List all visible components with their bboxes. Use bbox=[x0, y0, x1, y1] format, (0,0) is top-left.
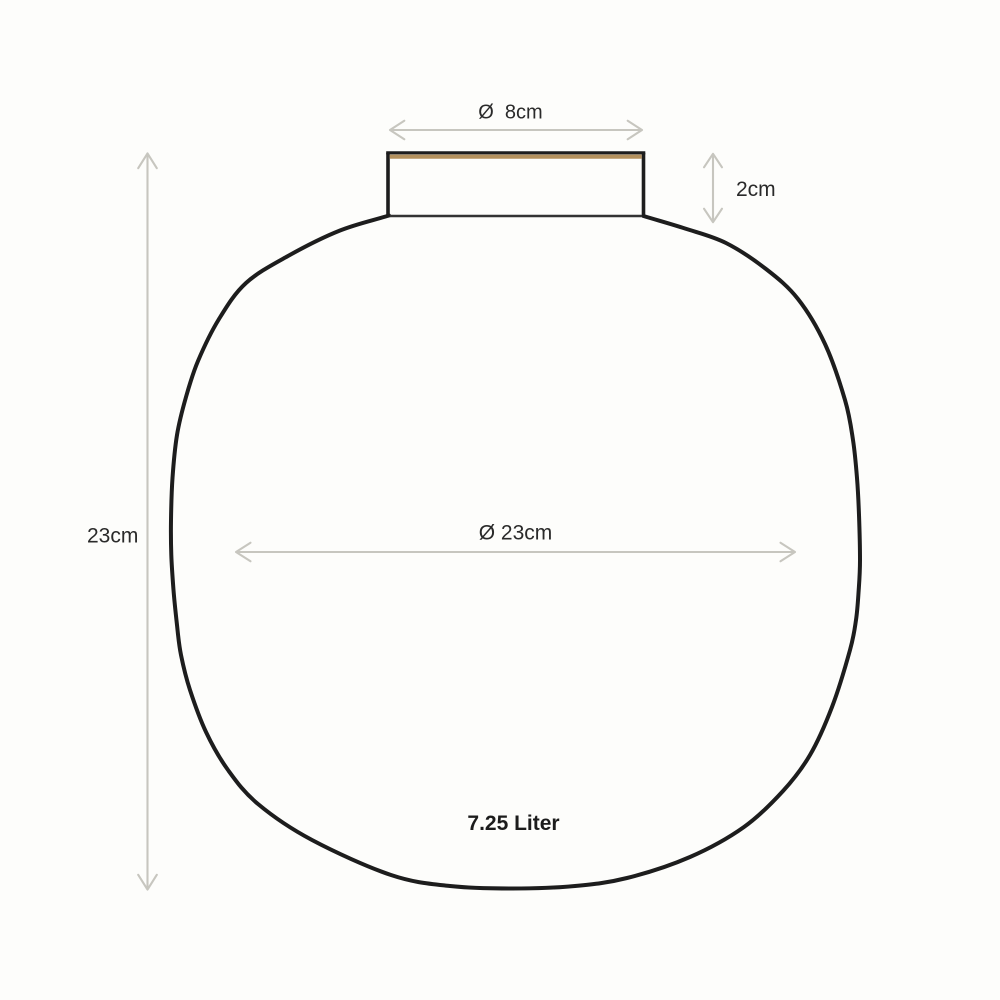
svg-text:Ø 23cm: Ø 23cm bbox=[479, 522, 553, 545]
svg-text:23cm: 23cm bbox=[87, 525, 138, 548]
svg-text:Ø 8cm: Ø 8cm bbox=[478, 102, 542, 124]
svg-text:7.25 Liter: 7.25 Liter bbox=[467, 812, 559, 835]
svg-text:2cm: 2cm bbox=[736, 178, 776, 201]
